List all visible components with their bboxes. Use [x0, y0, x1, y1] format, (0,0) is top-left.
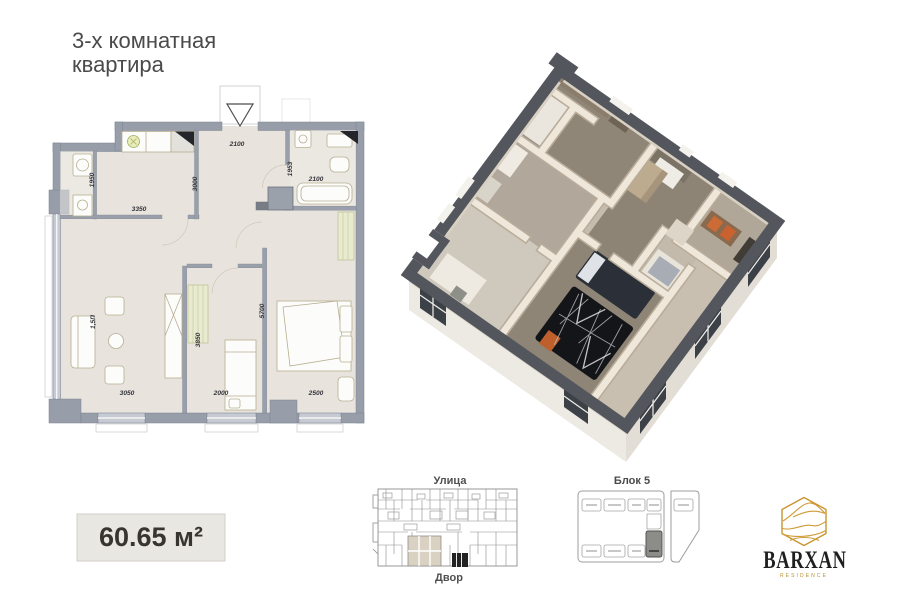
svg-text:BARXAN: BARXAN [763, 545, 847, 573]
svg-text:квартира: квартира [72, 52, 165, 77]
svg-text:Двор: Двор [435, 572, 463, 584]
svg-text:2500: 2500 [308, 390, 324, 397]
svg-text:RESIDENCE: RESIDENCE [780, 573, 828, 579]
svg-text:3050: 3050 [120, 390, 135, 397]
svg-text:Блок 5: Блок 5 [614, 475, 650, 487]
svg-text:1953: 1953 [287, 161, 294, 176]
svg-text:1950: 1950 [89, 172, 96, 187]
svg-text:1,5П: 1,5П [90, 315, 97, 329]
svg-text:2000: 2000 [213, 390, 229, 397]
svg-text:60.65 м²: 60.65 м² [99, 522, 203, 552]
svg-text:3-х комнатная: 3-х комнатная [72, 28, 216, 53]
svg-text:3350: 3350 [132, 206, 147, 213]
svg-text:5700: 5700 [259, 303, 266, 318]
svg-text:3850: 3850 [195, 332, 202, 347]
svg-text:2100: 2100 [229, 141, 245, 148]
svg-text:2100: 2100 [308, 176, 324, 183]
svg-text:Улица: Улица [434, 475, 468, 487]
svg-text:3000: 3000 [192, 176, 199, 191]
